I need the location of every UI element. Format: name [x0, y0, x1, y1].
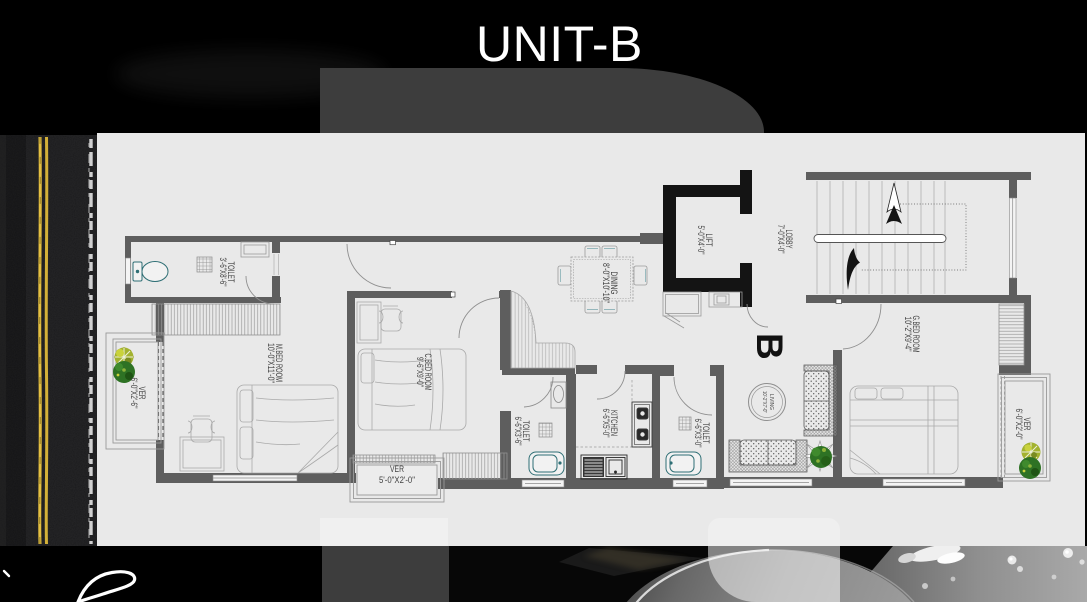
svg-text:5'-0"X4'-0": 5'-0"X4'-0" [696, 226, 706, 255]
svg-text:LIVING: LIVING [768, 394, 774, 410]
svg-text:6'-6"X5'-0": 6'-6"X5'-0" [601, 409, 611, 438]
svg-text:3'-6"X8'-6": 3'-6"X8'-6" [218, 258, 228, 287]
svg-text:6'-0"X2'-6": 6'-0"X2'-6" [129, 378, 139, 409]
svg-text:10'-2"X7'-0": 10'-2"X7'-0" [761, 391, 767, 413]
svg-text:B: B [749, 333, 790, 360]
svg-text:7'-0"X4'-0": 7'-0"X4'-0" [776, 225, 786, 254]
svg-text:6'-0"X2'-0": 6'-0"X2'-0" [1014, 409, 1024, 440]
svg-text:10'-0"X11'-0": 10'-0"X11'-0" [266, 343, 276, 383]
svg-text:6'-6"X3'-0": 6'-6"X3'-0" [693, 419, 703, 448]
svg-text:6'-6"X3'-6": 6'-6"X3'-6" [513, 417, 523, 446]
svg-text:9'-6"X9'-0": 9'-6"X9'-0" [415, 357, 425, 387]
svg-text:VER: VER [390, 464, 404, 474]
svg-text:5'-0"X2'-0": 5'-0"X2'-0" [379, 475, 415, 485]
svg-text:8'-0"X10'-10": 8'-0"X10'-10" [601, 263, 611, 303]
svg-text:10'-2"X9'-4": 10'-2"X9'-4" [903, 317, 913, 352]
